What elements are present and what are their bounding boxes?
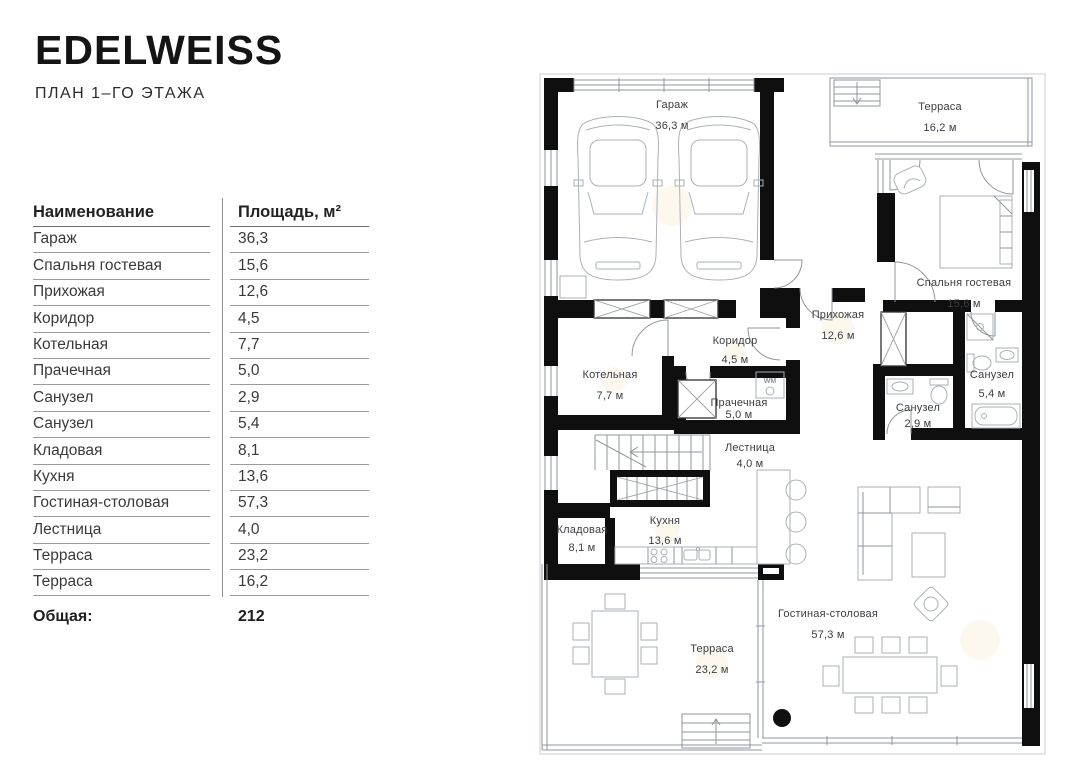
room-label: Спальня гостевая bbox=[917, 277, 1012, 289]
room-label: Прихожая bbox=[812, 309, 865, 321]
brand-block: EDELWEISS ПЛАН 1–ГО ЭТАЖА bbox=[35, 28, 283, 103]
svg-text:13,6 м: 13,6 м bbox=[648, 535, 681, 547]
table-row: Прихожая12,6 bbox=[33, 280, 369, 306]
room-label: Кухня bbox=[650, 515, 680, 527]
svg-text:4,5 м: 4,5 м bbox=[722, 354, 749, 366]
svg-text:2,9 м: 2,9 м bbox=[905, 418, 932, 430]
row-area: 4,0 bbox=[230, 521, 369, 544]
svg-text:57,3 м: 57,3 м bbox=[811, 629, 844, 641]
row-area: 16,2 bbox=[230, 573, 369, 596]
table-row: Котельная7,7 bbox=[33, 333, 369, 359]
table-row: Терраса23,2 bbox=[33, 544, 369, 570]
room-label: Котельная bbox=[582, 369, 637, 381]
svg-text:12,6 м: 12,6 м bbox=[821, 330, 854, 342]
room-label: Кладовая bbox=[557, 524, 608, 536]
total-value: 212 bbox=[230, 608, 369, 630]
armchair-icon bbox=[928, 487, 960, 513]
row-area: 2,9 bbox=[230, 389, 369, 412]
room-label: Гараж bbox=[656, 99, 688, 111]
row-area: 23,2 bbox=[230, 547, 369, 570]
row-name: Гараж bbox=[33, 230, 210, 253]
row-area: 7,7 bbox=[230, 336, 369, 359]
row-name: Котельная bbox=[33, 336, 210, 359]
table-row: Лестница4,0 bbox=[33, 517, 369, 543]
kitchen-counter bbox=[615, 547, 757, 564]
row-area: 15,6 bbox=[230, 257, 369, 280]
table-total-row: Общая: 212 bbox=[33, 603, 369, 629]
armchair-icon bbox=[892, 164, 928, 197]
dining-table-icon bbox=[843, 657, 937, 693]
table-row: Спальня гостевая15,6 bbox=[33, 253, 369, 279]
table-header-row: Наименование Площадь, м² bbox=[33, 196, 369, 227]
svg-text:15,6 м: 15,6 м bbox=[947, 298, 980, 310]
table-column-divider bbox=[222, 198, 223, 597]
row-name: Кладовая bbox=[33, 442, 210, 465]
lounge-chair-icon bbox=[913, 586, 950, 623]
toilet-icon bbox=[930, 379, 948, 385]
row-name: Гостиная-столовая bbox=[33, 494, 210, 517]
svg-text:7,7 м: 7,7 м bbox=[597, 390, 624, 402]
floorplan-drawing: WM bbox=[532, 66, 1072, 766]
room-label: Санузел bbox=[896, 402, 940, 414]
total-label: Общая: bbox=[33, 608, 210, 630]
room-label: Коридор bbox=[713, 335, 758, 347]
terrace-steps bbox=[682, 714, 750, 748]
area-table: Наименование Площадь, м² Гараж36,3 Спаль… bbox=[33, 196, 369, 630]
row-area: 12,6 bbox=[230, 283, 369, 306]
row-area: 8,1 bbox=[230, 442, 369, 465]
bar-counter bbox=[757, 470, 806, 564]
table-row: Гараж36,3 bbox=[33, 227, 369, 253]
svg-text:36,3 м: 36,3 м bbox=[655, 120, 688, 132]
svg-text:WM: WM bbox=[764, 378, 777, 385]
bathroom-29-fixtures bbox=[887, 379, 948, 404]
steps-arrow-down bbox=[853, 82, 861, 104]
table-row: Гостиная-столовая57,3 bbox=[33, 491, 369, 517]
column bbox=[773, 709, 791, 727]
page-title: ПЛАН 1–ГО ЭТАЖА bbox=[35, 85, 283, 103]
row-area: 57,3 bbox=[230, 494, 369, 517]
row-name: Коридор bbox=[33, 310, 210, 333]
room-label: Лестница bbox=[725, 442, 776, 454]
coffee-table-icon bbox=[912, 533, 945, 577]
row-name: Прихожая bbox=[33, 283, 210, 306]
floorplan-page: EDELWEISS ПЛАН 1–ГО ЭТАЖА Наименование П… bbox=[0, 0, 1072, 768]
row-name: Лестница bbox=[33, 521, 210, 544]
room-label: Терраса bbox=[690, 643, 734, 655]
table-row: Прачечная5,0 bbox=[33, 359, 369, 385]
table-row: Терраса16,2 bbox=[33, 570, 369, 596]
svg-text:5,4 м: 5,4 м bbox=[979, 388, 1006, 400]
column-header-area: Площадь, м² bbox=[230, 203, 369, 227]
svg-text:23,2 м: 23,2 м bbox=[695, 664, 728, 676]
svg-text:16,2 м: 16,2 м bbox=[923, 122, 956, 134]
room-label: Санузел bbox=[970, 369, 1014, 381]
row-area: 5,0 bbox=[230, 362, 369, 385]
row-area: 36,3 bbox=[230, 230, 369, 253]
row-name: Санузел bbox=[33, 389, 210, 412]
svg-text:4,0 м: 4,0 м bbox=[737, 458, 764, 470]
table-row: Санузел2,9 bbox=[33, 385, 369, 411]
row-area: 13,6 bbox=[230, 468, 369, 491]
room-label: Гостиная-столовая bbox=[778, 608, 878, 620]
table-row: Кладовая8,1 bbox=[33, 438, 369, 464]
room-label: Терраса bbox=[918, 101, 962, 113]
room-label: Прачечная bbox=[710, 397, 767, 409]
svg-text:5,0 м: 5,0 м bbox=[726, 409, 753, 421]
table-row: Коридор4,5 bbox=[33, 306, 369, 332]
table-row: Санузел5,4 bbox=[33, 412, 369, 438]
garage-cabinet bbox=[560, 276, 586, 298]
sink-icon bbox=[887, 379, 913, 394]
logo-text: EDELWEISS bbox=[35, 28, 283, 73]
svg-text:8,1 м: 8,1 м bbox=[569, 542, 596, 554]
sofa-icon bbox=[858, 487, 920, 580]
row-name: Кухня bbox=[33, 468, 210, 491]
terrace-table-icon bbox=[592, 611, 638, 677]
row-area: 5,4 bbox=[230, 415, 369, 438]
bedroom-furniture bbox=[892, 164, 1012, 268]
table-row: Кухня13,6 bbox=[33, 465, 369, 491]
row-name: Спальня гостевая bbox=[33, 257, 210, 280]
column-header-name: Наименование bbox=[33, 203, 210, 227]
row-name: Санузел bbox=[33, 415, 210, 438]
row-name: Прачечная bbox=[33, 362, 210, 385]
row-area: 4,5 bbox=[230, 310, 369, 333]
row-name: Терраса bbox=[33, 547, 210, 570]
living-room-furniture bbox=[773, 487, 960, 727]
row-name: Терраса bbox=[33, 573, 210, 596]
